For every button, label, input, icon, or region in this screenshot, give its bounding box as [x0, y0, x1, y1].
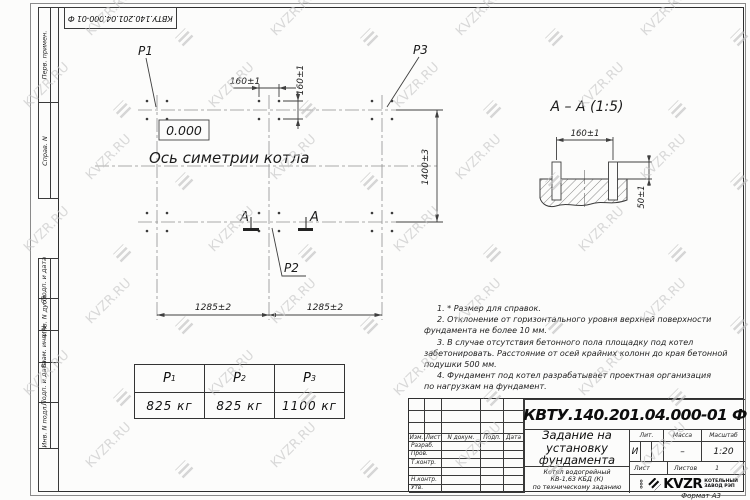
section-letter-left: А — [239, 210, 249, 225]
dim-1285-left: 1285±2 — [195, 303, 231, 313]
load-label-p1: P1 — [138, 44, 153, 58]
elevation-mark: 0.000 — [166, 123, 202, 138]
section-title: А – А (1:5) — [550, 99, 624, 115]
load-label-p3: P3 — [413, 43, 428, 57]
section-foundation — [540, 162, 627, 207]
anchor-bolt-right — [609, 162, 618, 200]
section-dim-50: 50±1 — [637, 185, 647, 208]
drawing-canvas: P1 P3 P2 160±1 160±1 1400±3 1285±2 1285±… — [0, 0, 750, 500]
dim-160-vertical: 160±1 — [296, 65, 306, 95]
dim-1400: 1400±3 — [421, 149, 431, 185]
anchor-bolt-left — [552, 162, 561, 200]
section-letter-right: А — [309, 210, 319, 225]
drawing-sheet: Перв. примен.Справ. N Подп. и датаИнв. N… — [0, 0, 750, 500]
dim-1285-right: 1285±2 — [307, 303, 343, 313]
section-cut-marks — [243, 217, 313, 230]
axis-caption: Ось симетрии котла — [149, 149, 309, 167]
load-label-p2: P2 — [284, 261, 299, 275]
dim-160-horizontal: 160±1 — [230, 77, 260, 87]
section-dim-160: 160±1 — [571, 129, 600, 139]
